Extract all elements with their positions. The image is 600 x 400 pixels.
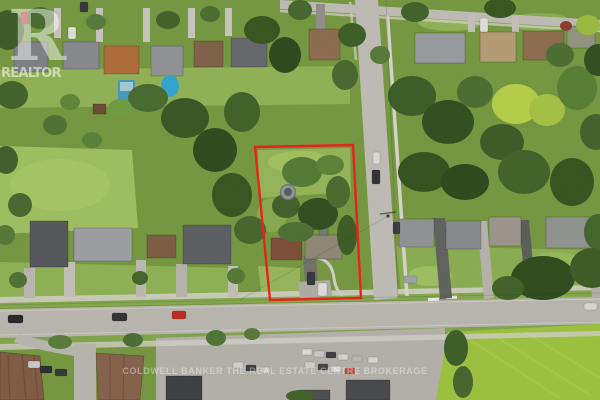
aerial-scene: R REALTOR COLDWELL BANKER THE REAL ESTAT…	[0, 0, 600, 400]
realtor-logo-word: REALTOR	[1, 66, 63, 81]
photo-grain	[0, 0, 600, 400]
realtor-watermark: R REALTOR	[1, 0, 67, 81]
aerial-photo: R REALTOR COLDWELL BANKER THE REAL ESTAT…	[0, 0, 600, 400]
brokerage-watermark: COLDWELL BANKER THE REAL ESTATE CENTRE B…	[122, 366, 427, 376]
